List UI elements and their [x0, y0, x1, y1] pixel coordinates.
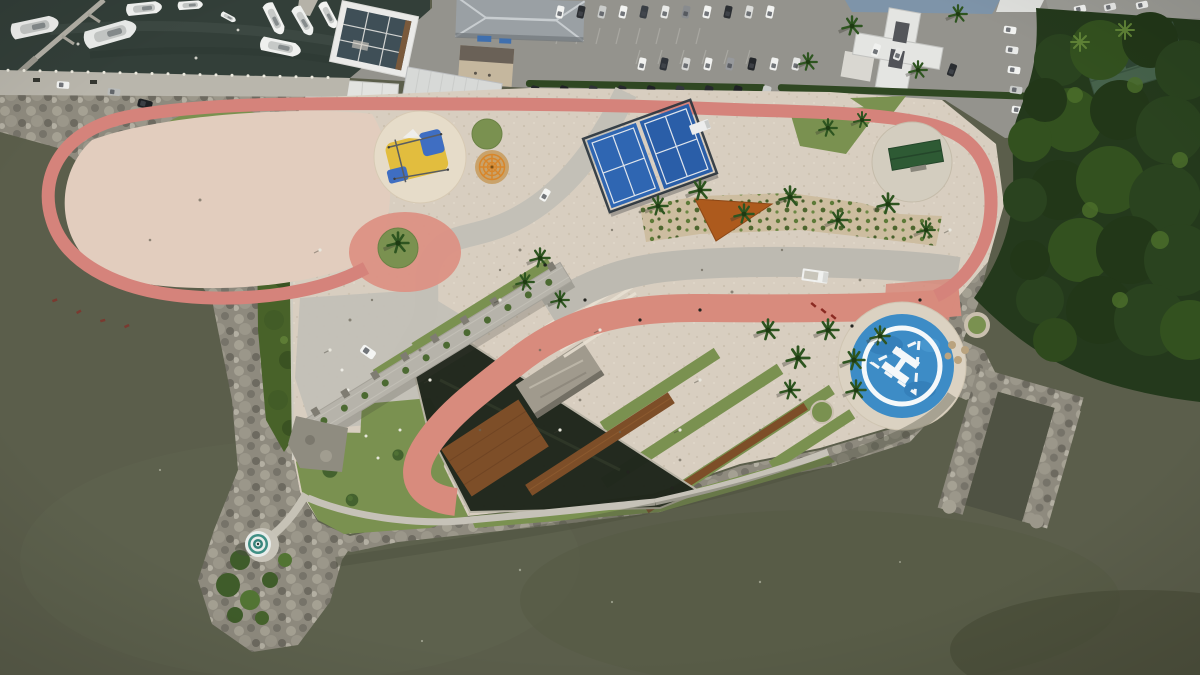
vignette: [0, 0, 1200, 675]
aerial-photo: H: [0, 0, 1200, 675]
aerial-photo-canvas: H: [0, 0, 1200, 675]
